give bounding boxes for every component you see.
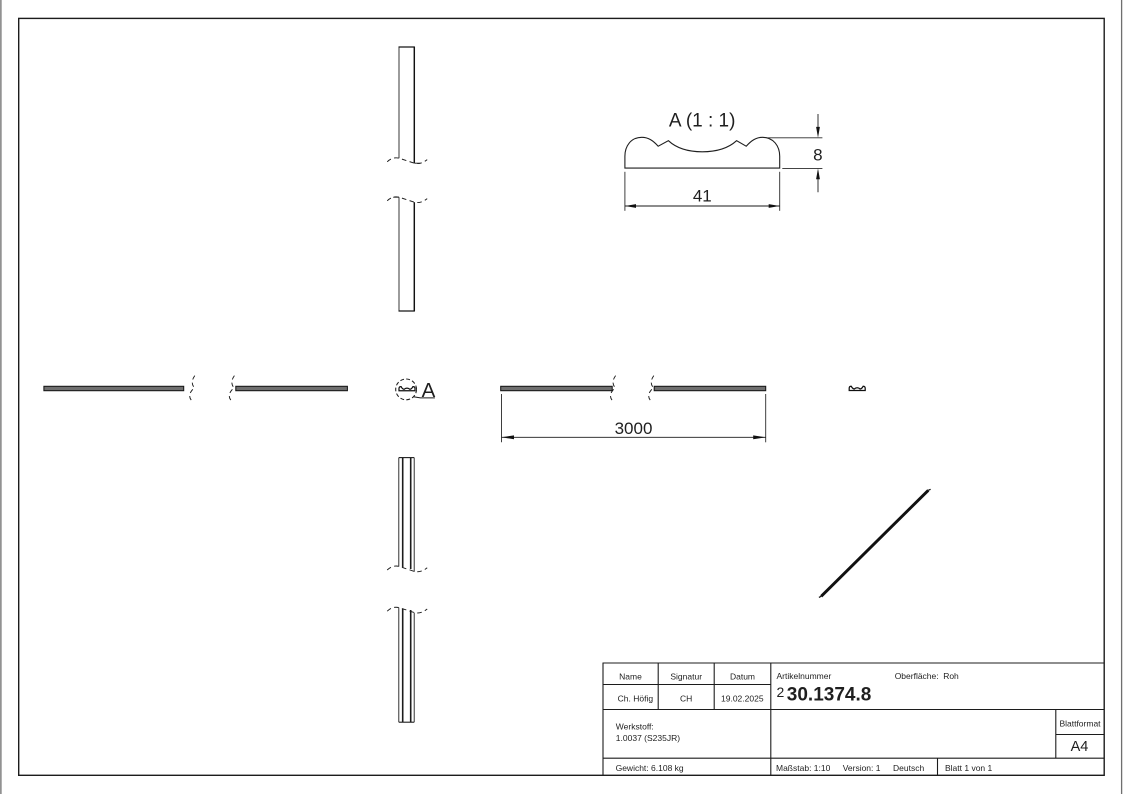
svg-text:3000: 3000 (615, 419, 653, 438)
svg-text:Datum: Datum (730, 672, 755, 682)
svg-text:Werkstoff:: Werkstoff: (616, 722, 654, 732)
svg-text:Maßstab: 1:10: Maßstab: 1:10 (776, 763, 831, 773)
svg-text:Gewicht: 6.108 kg: Gewicht: 6.108 kg (616, 763, 684, 773)
svg-text:1.0037 (S235JR): 1.0037 (S235JR) (616, 733, 680, 743)
svg-text:Version: 1: Version: 1 (843, 763, 881, 773)
svg-text:41: 41 (693, 187, 712, 206)
svg-text:19.02.2025: 19.02.2025 (721, 694, 764, 704)
svg-text:Blattformat: Blattformat (1059, 719, 1101, 729)
svg-text:CH: CH (680, 694, 692, 704)
svg-text:Artikelnummer: Artikelnummer (777, 671, 832, 681)
svg-text:A4: A4 (1071, 739, 1089, 755)
svg-text:A (1 : 1): A (1 : 1) (669, 110, 736, 131)
svg-text:Oberfläche:: Oberfläche: (895, 671, 939, 681)
svg-text:A: A (422, 379, 436, 402)
svg-text:Ch. Höfig: Ch. Höfig (618, 694, 654, 704)
svg-text:Name: Name (619, 672, 642, 682)
svg-text:8: 8 (813, 145, 822, 164)
svg-text:Signatur: Signatur (670, 672, 702, 682)
svg-text:Roh: Roh (943, 671, 959, 681)
svg-text:30.1374.8: 30.1374.8 (787, 685, 872, 706)
svg-text:Deutsch: Deutsch (893, 763, 924, 773)
svg-text:2: 2 (777, 684, 785, 700)
svg-text:Blatt 1 von 1: Blatt 1 von 1 (945, 763, 993, 773)
